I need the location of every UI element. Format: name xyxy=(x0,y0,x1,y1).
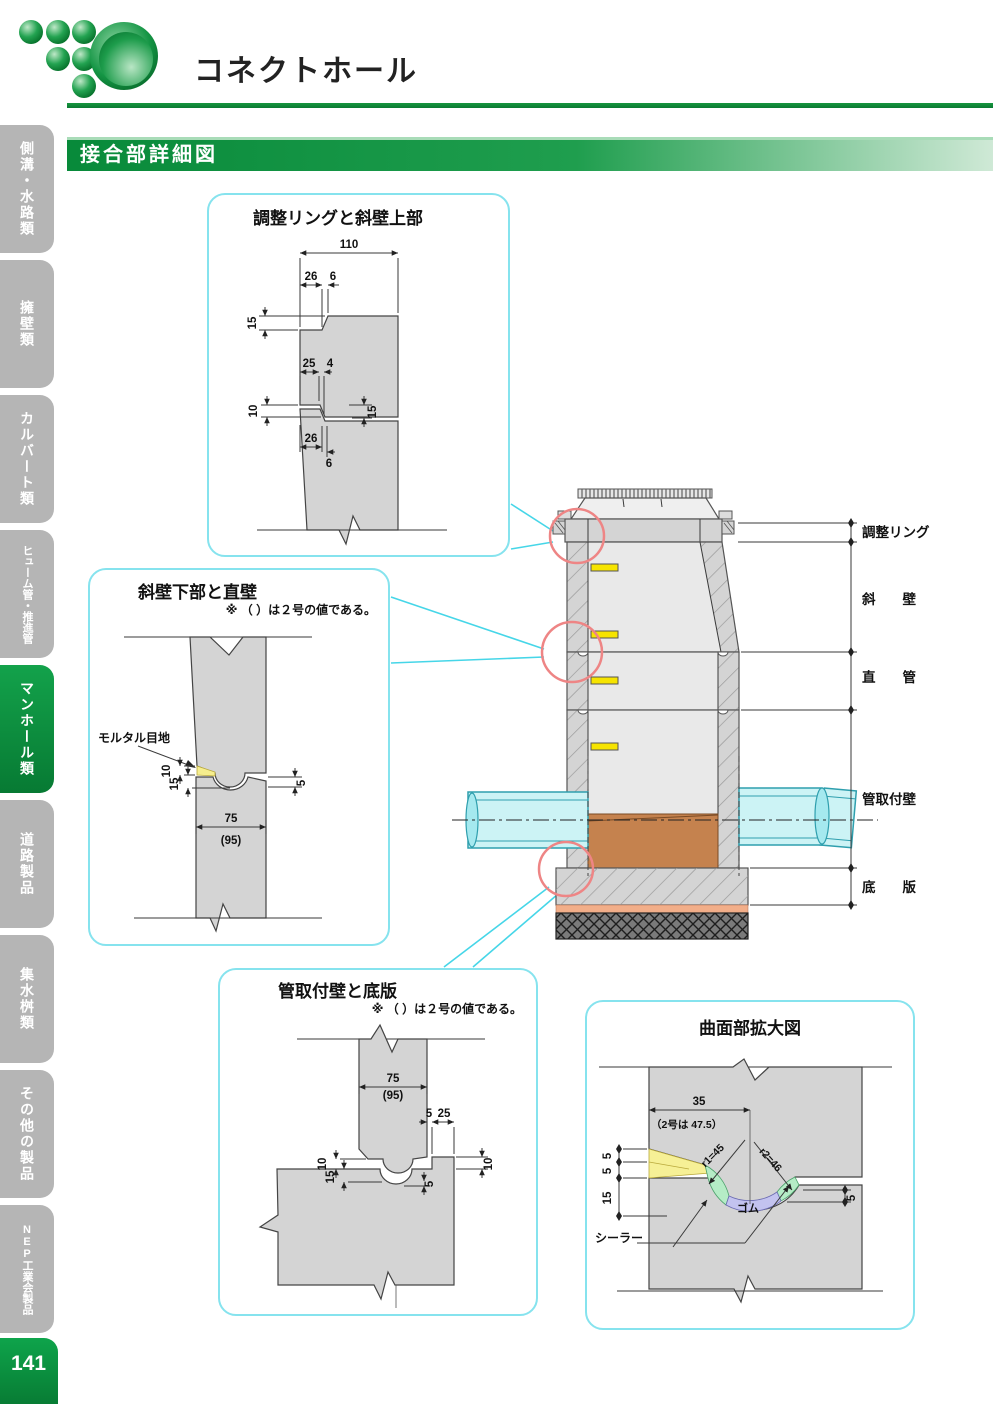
dim-label: 15 xyxy=(367,405,379,418)
detail1-drawing: 110 26 6 15 25 4 10 15 26 6 xyxy=(209,195,508,555)
dim-label: 5 xyxy=(426,1108,433,1120)
dim-label: 5 xyxy=(846,1194,858,1201)
manhole-cover-frame xyxy=(558,489,732,519)
dim-label: 15 xyxy=(169,777,181,790)
page-number-tab: 141 xyxy=(0,1338,58,1404)
dim-label: 15 xyxy=(325,1170,337,1183)
dim-label: 4 xyxy=(327,358,334,370)
detail-box-wall-base: 管取付壁と底版 ※ （ ）は２号の値である。 75 (95) 5 25 10 1… xyxy=(218,968,538,1316)
rubber-label: ゴム xyxy=(737,1201,759,1215)
dim-label: 10 xyxy=(317,1158,329,1171)
adjusting-ring xyxy=(553,519,734,542)
detail-box-cone-bottom: 斜壁下部と直壁 ※ （ ）は２号の値である。 モルタル目地 10 15 5 75… xyxy=(88,568,390,946)
dim-label: (95) xyxy=(221,835,242,847)
detail2-note: ※ （ ）は２号の値である。 xyxy=(226,601,376,618)
right-pipe xyxy=(739,788,856,848)
dim-label: 25 xyxy=(438,1108,451,1120)
dim-label: 10 xyxy=(483,1158,495,1171)
detail4-title: 曲面部拡大図 xyxy=(587,1014,913,1039)
dim-label: 5 xyxy=(424,1180,436,1187)
detail3-drawing: 75 (95) 5 25 10 15 5 10 xyxy=(220,970,536,1314)
sidebar-item-catch-basins[interactable]: 集水桝類 xyxy=(0,935,54,1063)
label-straight-pipe: 直 管 xyxy=(862,669,916,685)
sealer-label: シーラー xyxy=(595,1231,643,1245)
leader-lines xyxy=(391,504,558,967)
sidebar-item-retaining[interactable]: 擁壁類 xyxy=(0,260,54,388)
dim-label: 75 xyxy=(387,1073,400,1085)
bedding-layer xyxy=(556,905,748,913)
catalog-page: { "header": { "title": "コネクトホール", "secti… xyxy=(0,0,993,1404)
detail3-title: 管取付壁と底版 xyxy=(278,977,397,1002)
dim-label: 6 xyxy=(330,271,336,283)
invert-fill xyxy=(588,814,718,868)
sidebar-item-road[interactable]: 道路製品 xyxy=(0,800,54,928)
sidebar-item-other[interactable]: その他の製品 xyxy=(0,1070,54,1198)
base-slab xyxy=(556,868,748,939)
detail4-drawing: 35 （2号は 47.5） 5 5 15 r1=45 r2=46 5 ゴム シー… xyxy=(587,1002,913,1328)
sidebar-item-nep[interactable]: NEP工業会製品 xyxy=(0,1205,54,1333)
dim-label: 110 xyxy=(340,239,359,251)
label-slope-wall: 斜 壁 xyxy=(861,591,916,607)
dim-label: 15 xyxy=(602,1191,614,1204)
label-base-slab: 底 版 xyxy=(862,879,916,895)
dim-label: 10 xyxy=(248,405,260,418)
detail2-drawing: モルタル目地 10 15 5 75 (95) xyxy=(90,570,388,944)
segment-dimension: 調整リング 斜 壁 直 管 管取付壁 底 版 xyxy=(738,518,930,910)
detail3-note: ※ （ ）は２号の値である。 xyxy=(372,1000,522,1017)
dim-label: 26 xyxy=(305,271,318,283)
sidebar-item-gutters[interactable]: 側溝・水路類 xyxy=(0,125,54,253)
detail1-title: 調整リングと斜壁上部 xyxy=(253,204,423,229)
dim-label: (95) xyxy=(383,1090,404,1102)
label-adjusting-ring: 調整リング xyxy=(862,524,930,540)
sidebar-item-culverts[interactable]: カルバート類 xyxy=(0,395,54,523)
sidebar-item-hume-pipes[interactable]: ヒューム管・推進管 xyxy=(0,530,54,658)
dim-label: 5 xyxy=(602,1152,614,1159)
pipe-wall-section xyxy=(567,710,739,868)
dim-label: 35 xyxy=(693,1096,706,1108)
sidebar-item-manholes[interactable]: マンホール類 xyxy=(0,665,54,793)
dim-label: 26 xyxy=(305,433,318,445)
dim-label: 6 xyxy=(326,458,332,470)
label-pipe-wall: 管取付壁 xyxy=(862,791,916,807)
dim-note: （2号は 47.5） xyxy=(651,1118,722,1131)
dim-label: 15 xyxy=(247,316,259,329)
detail-box-ring-top: 調整リングと斜壁上部 110 26 6 15 25 4 xyxy=(207,193,510,557)
detail2-title: 斜壁下部と直壁 xyxy=(138,578,257,603)
dim-label: 5 xyxy=(602,1167,614,1174)
detail-box-curved-section: 曲面部拡大図 35 （2号は 47.5） xyxy=(585,1000,915,1330)
dim-label: 75 xyxy=(225,813,238,825)
dim-label: 5 xyxy=(296,779,308,786)
dim-label: 10 xyxy=(161,765,173,778)
mortar-joint-label: モルタル目地 xyxy=(98,730,170,745)
dim-label: 25 xyxy=(303,358,316,370)
